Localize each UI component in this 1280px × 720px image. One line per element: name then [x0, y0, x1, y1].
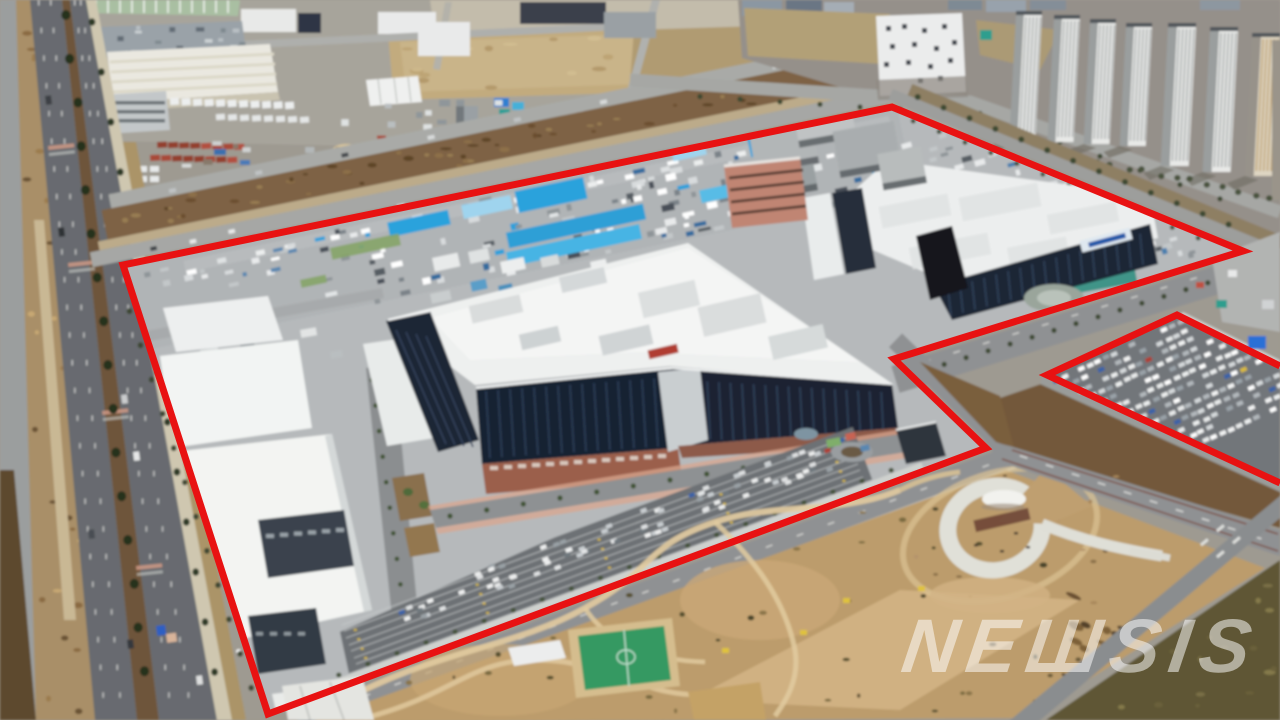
- svg-text:NEШSIS: NEШSIS: [897, 604, 1265, 689]
